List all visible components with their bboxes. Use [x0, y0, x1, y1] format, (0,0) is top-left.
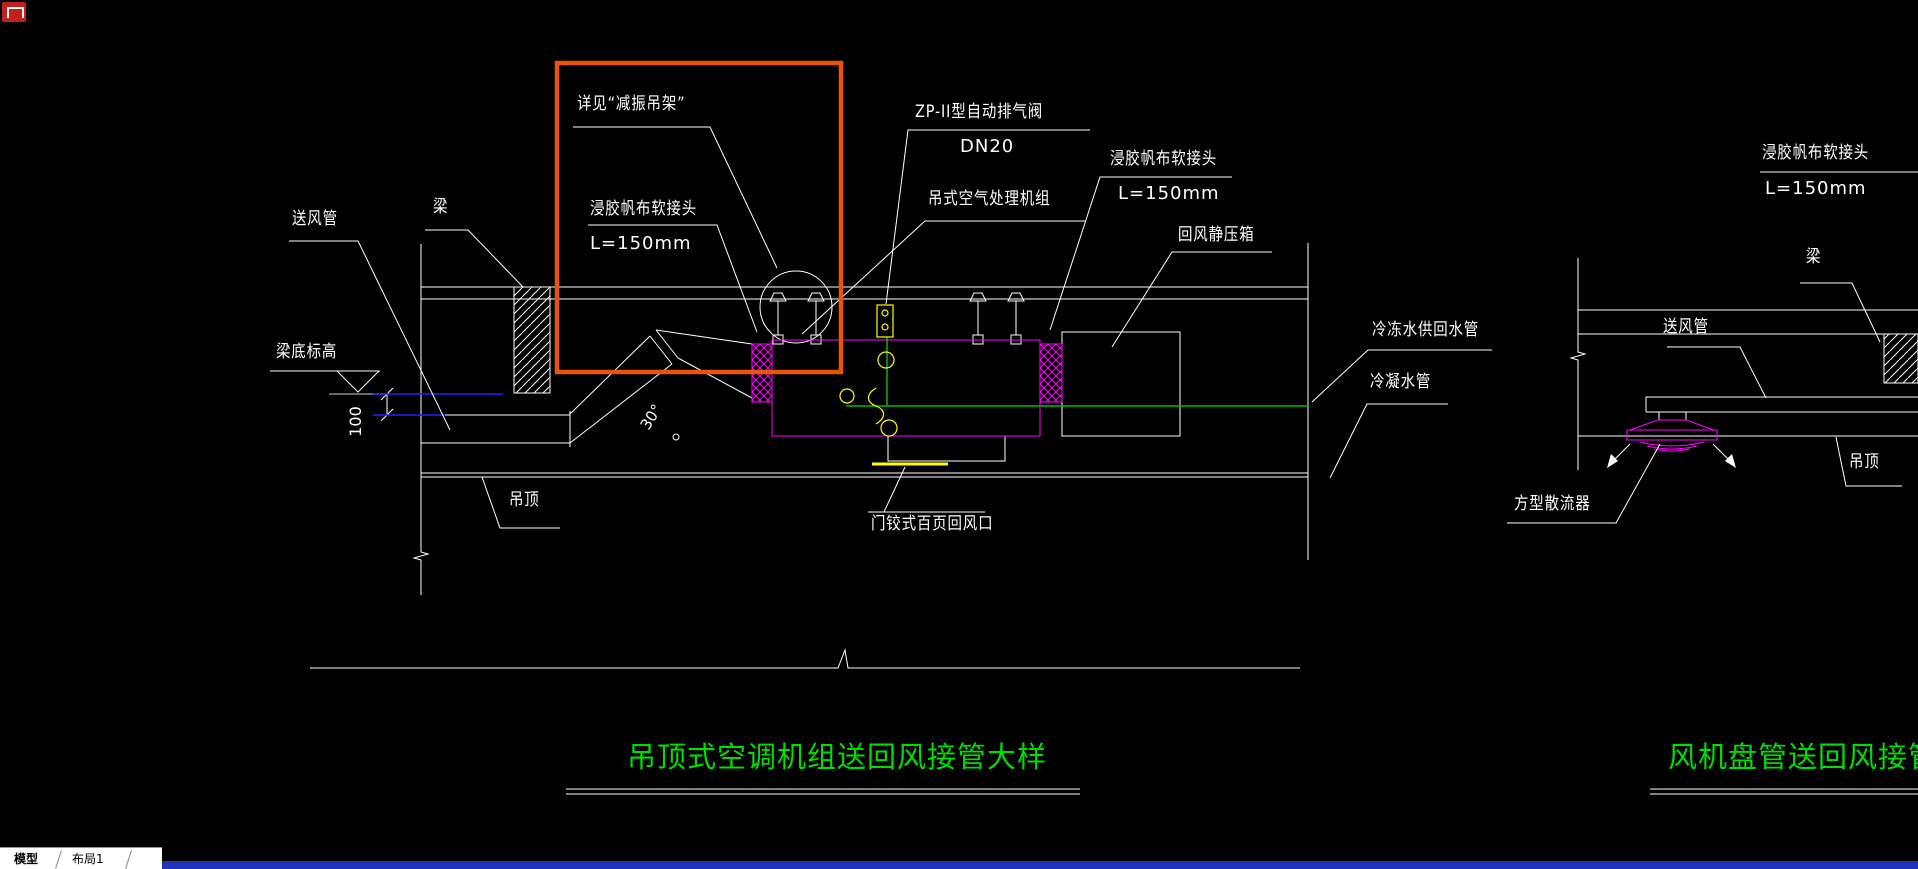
label-flex-joint-fcu-length: L=150mm: [1765, 180, 1867, 198]
vibration-hangers: [760, 271, 1024, 344]
label-condensate-pipe: 冷凝水管: [1370, 373, 1431, 392]
label-beam-bottom-level: 梁底标高: [276, 343, 337, 362]
app-logo-icon[interactable]: [2, 2, 26, 22]
airflow-arrowhead-right: [1725, 454, 1736, 468]
right-detail-title: 风机盘管送回风接管: [1668, 742, 1918, 774]
tab-divider: [55, 850, 62, 868]
beam-hatch-right: [1884, 334, 1918, 383]
label-supply-duct: 送风管: [292, 210, 338, 229]
right-title-underline: [1650, 789, 1918, 794]
label-flex-joint-fcu: 浸胶帆布软接头: [1762, 144, 1869, 163]
chw-pipes: [846, 337, 1308, 406]
left-detail-title: 吊顶式空调机组送回风接管大样: [627, 742, 1047, 774]
label-hinged-louver: 门铰式百页回风口: [871, 515, 993, 534]
label-auto-air-vent: ZP-II型自动排气阀: [915, 103, 1043, 122]
label-square-diffuser: 方型散流器: [1514, 495, 1591, 514]
ahu-body: [772, 340, 1040, 436]
label-flex-joint-left: 浸胶帆布软接头: [590, 200, 697, 219]
drawing-canvas[interactable]: [0, 0, 1918, 846]
left-detail-structure: [270, 243, 1308, 668]
tab-panel: 模型 布局1: [0, 847, 162, 869]
airflow-arrowhead-left: [1607, 454, 1618, 468]
tab-divider: [125, 850, 132, 868]
label-beam: 梁: [433, 198, 448, 217]
valve-icon: [878, 352, 894, 368]
cad-window: 送风管 梁 梁底标高 100 30° 详见“减振吊架” 浸胶帆布软接头 L=15…: [0, 0, 1918, 869]
valve-icon: [840, 389, 854, 403]
label-flex-joint-right-length: L=150mm: [1118, 185, 1220, 203]
label-beam-right: 梁: [1806, 248, 1821, 267]
status-strip: [162, 861, 1918, 869]
detail-circle: [760, 271, 832, 343]
right-title-clip: 风机盘管送回风接管: [1660, 738, 1918, 780]
valves-and-air-vent: [840, 305, 897, 436]
right-detail-structure: [1571, 258, 1918, 470]
valve-icon: [881, 420, 897, 436]
left-title-underline: [566, 789, 1080, 794]
label-ceiling-left: 吊顶: [509, 491, 540, 510]
label-see-vibration-hanger: 详见“减振吊架”: [577, 95, 685, 114]
tab-model[interactable]: 模型: [4, 848, 48, 869]
label-return-plenum: 回风静压箱: [1178, 226, 1255, 245]
beam-hatch-left: [514, 287, 550, 393]
left-leaders: [289, 127, 1492, 528]
label-chw-pipe: 冷冻水供回水管: [1372, 321, 1479, 340]
label-ahu: 吊式空气处理机组: [928, 190, 1050, 209]
label-dim-100: 100: [346, 406, 365, 437]
label-flex-joint-right: 浸胶帆布软接头: [1110, 150, 1217, 169]
label-flex-joint-left-length: L=150mm: [590, 235, 692, 253]
label-auto-air-vent-dn: DN20: [960, 138, 1014, 156]
tab-layout1[interactable]: 布局1: [62, 848, 114, 869]
layout-tab-bar: 模型 布局1: [0, 846, 1918, 869]
right-top-label-clip: 浸胶帆布软接头 L=150mm: [1755, 140, 1918, 210]
label-ceiling-right: 吊顶: [1849, 453, 1880, 472]
label-supply-duct-right: 送风管: [1663, 318, 1709, 337]
ahu-unit: [752, 340, 1062, 436]
flex-connector-right: [1040, 344, 1062, 402]
